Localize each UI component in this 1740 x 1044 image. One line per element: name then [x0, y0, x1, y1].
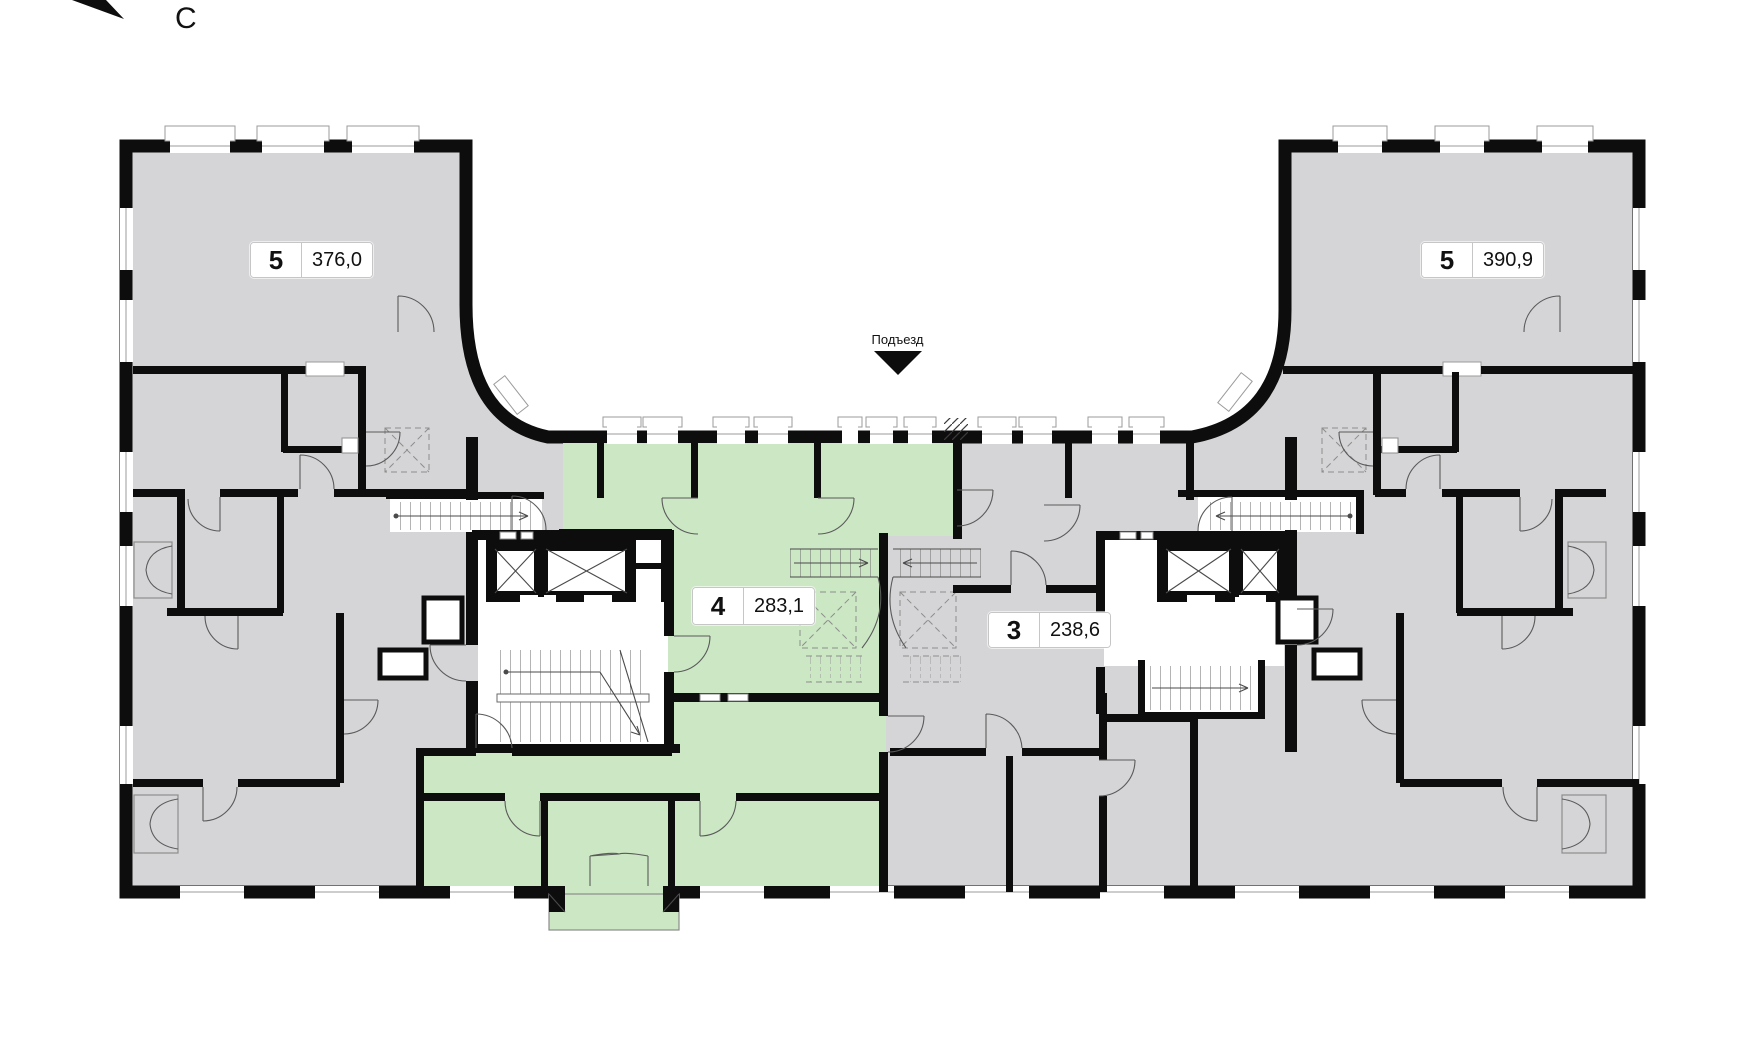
apartment-area: 390,9 [1473, 243, 1543, 277]
north-arrow-icon [72, 0, 124, 19]
windows-top [165, 126, 1593, 153]
facade-windows [494, 373, 1252, 444]
apartment-label-center-4[interactable]: 4 283,1 [692, 587, 815, 625]
north-indicator: С [60, 0, 250, 60]
apartment-area: 283,1 [744, 588, 814, 624]
apartment-number: 4 [693, 588, 744, 624]
entrance-marker: Подъезд [830, 332, 965, 375]
north-letter: С [175, 2, 197, 36]
apartment-label-left-5[interactable]: 5 376,0 [250, 242, 373, 278]
apartment-number: 3 [989, 613, 1040, 647]
apartment-4-balcony [549, 886, 679, 930]
apartment-number: 5 [251, 243, 302, 277]
apartment-label-right-5[interactable]: 5 390,9 [1421, 242, 1544, 278]
floor-plan-drawing [0, 0, 1740, 1044]
apartment-label-center-3[interactable]: 3 238,6 [988, 612, 1111, 648]
apartment-area: 376,0 [302, 243, 372, 277]
floor-plan-page: 5 376,0 4 283,1 3 238,6 5 390,9 С Подъез… [0, 0, 1740, 1044]
left-wing-top-windows [165, 126, 419, 153]
right-wing-top-windows [1333, 126, 1593, 153]
entrance-arrow-icon [874, 351, 922, 375]
apartment-number: 5 [1422, 243, 1473, 277]
entrance-label: Подъезд [830, 332, 965, 347]
apartment-area: 238,6 [1040, 613, 1110, 647]
